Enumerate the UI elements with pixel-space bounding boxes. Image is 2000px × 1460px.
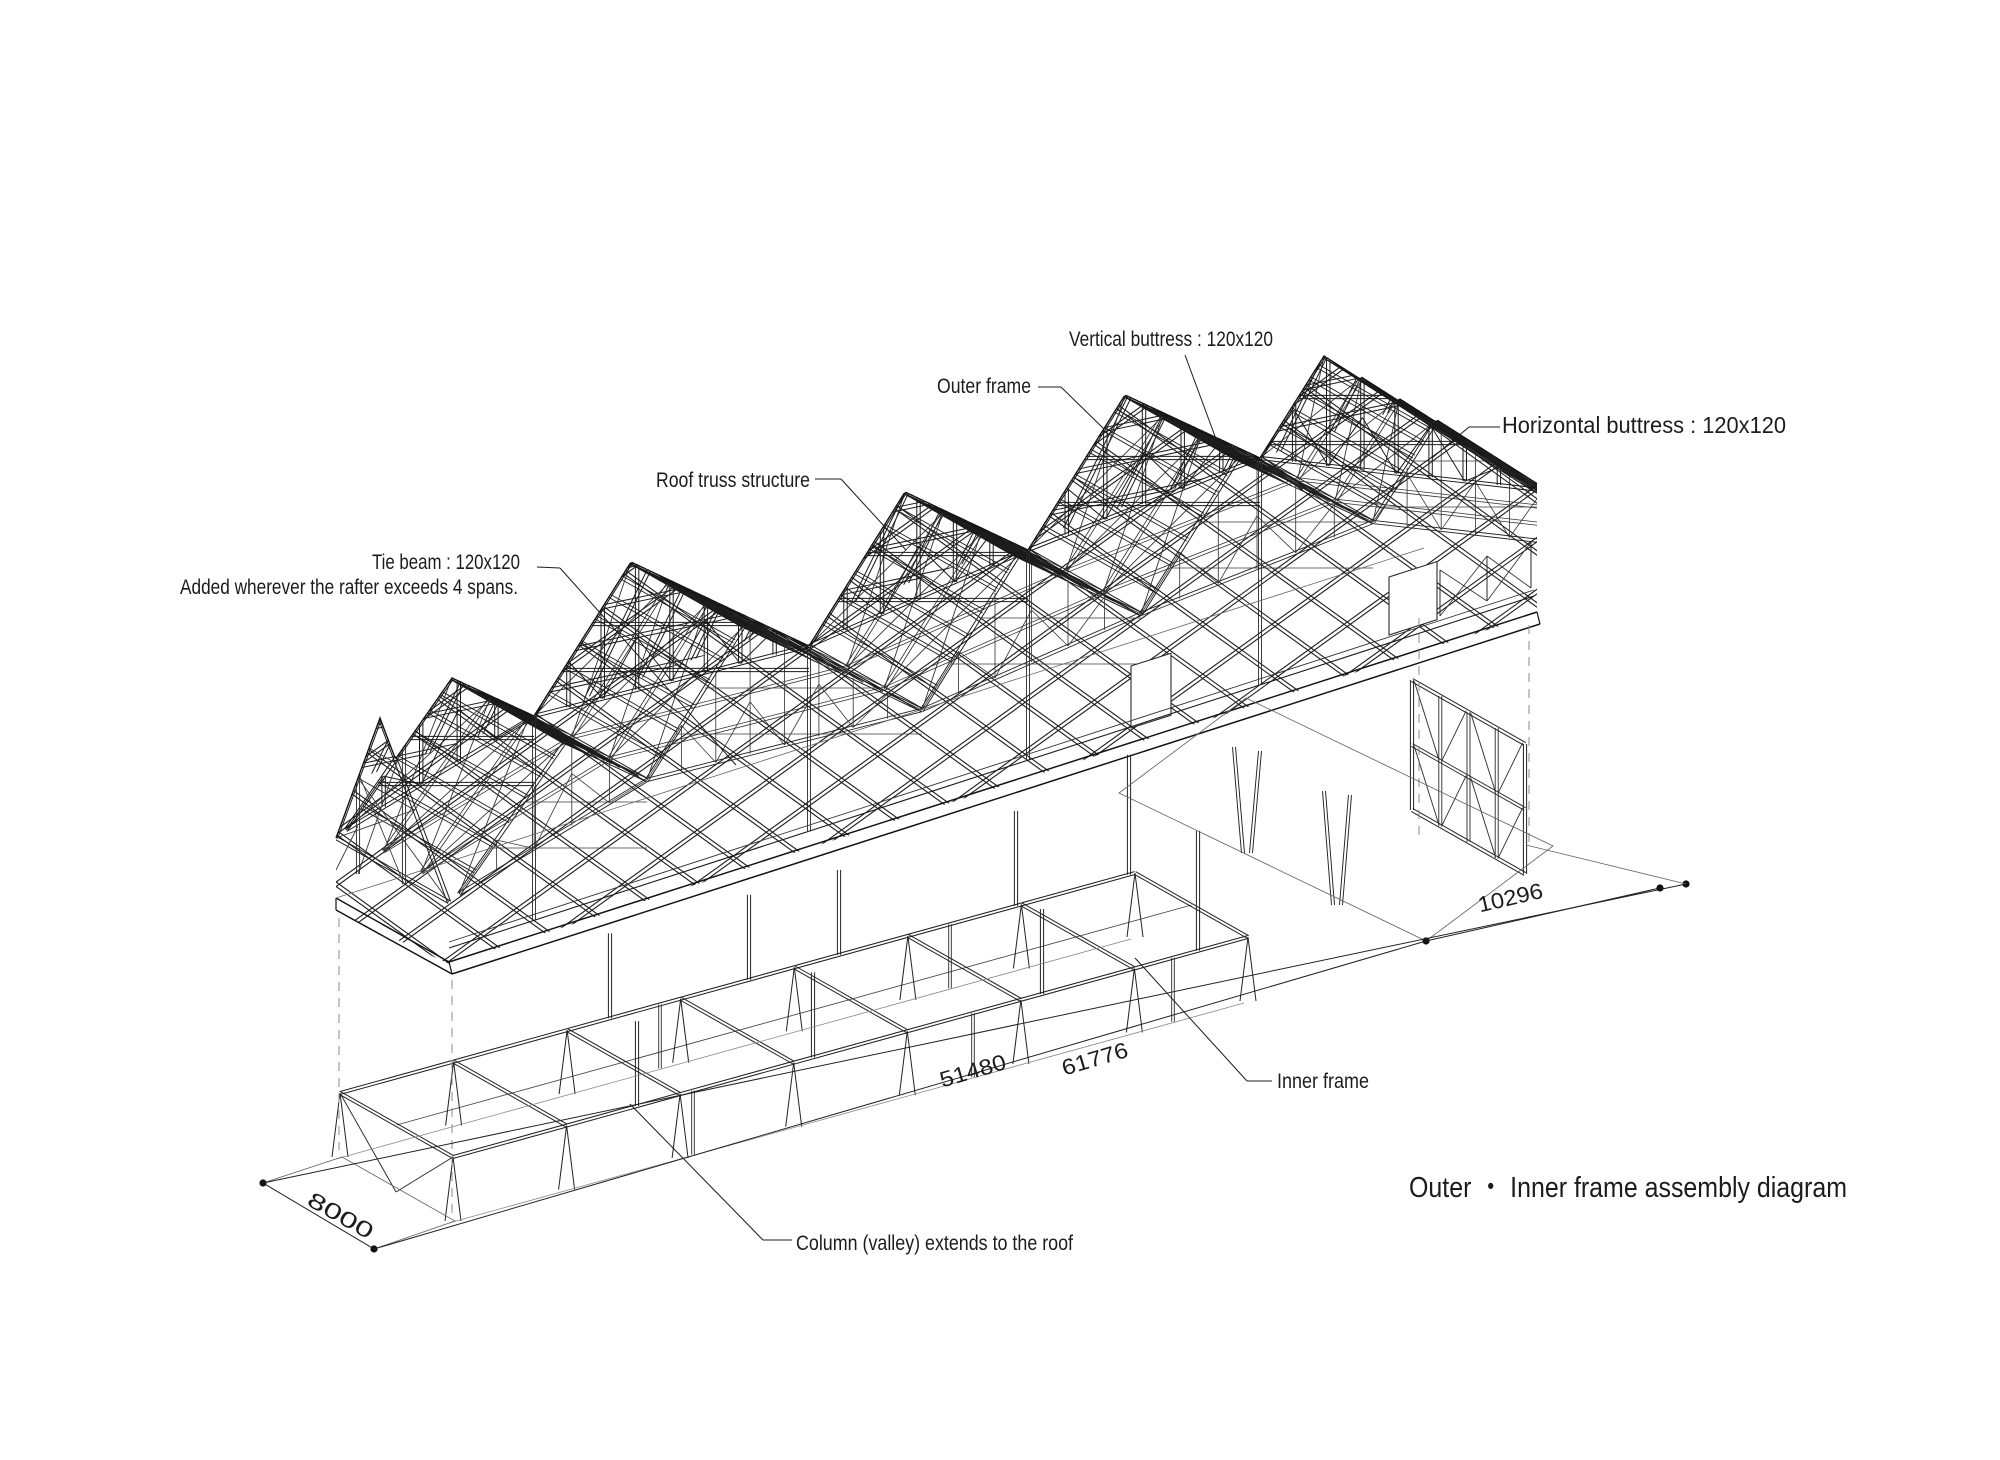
svg-text:Roof truss structure: Roof truss structure (656, 469, 810, 492)
svg-text:Inner frame: Inner frame (1277, 1070, 1369, 1093)
svg-text:Tie beam : 120x120: Tie beam : 120x120 (372, 551, 520, 574)
svg-text:Outer frame: Outer frame (937, 375, 1031, 398)
svg-text:Outer ・ Inner frame assembly d: Outer ・ Inner frame assembly diagram (1409, 1172, 1847, 1204)
svg-text:Added wherever the rafter exce: Added wherever the rafter exceeds 4 span… (180, 576, 518, 599)
svg-text:Horizontal buttress : 120x120: Horizontal buttress : 120x120 (1502, 412, 1786, 438)
svg-text:Column (valley) extends to the: Column (valley) extends to the roof (796, 1232, 1073, 1255)
svg-text:Vertical buttress : 120x120: Vertical buttress : 120x120 (1069, 328, 1273, 351)
